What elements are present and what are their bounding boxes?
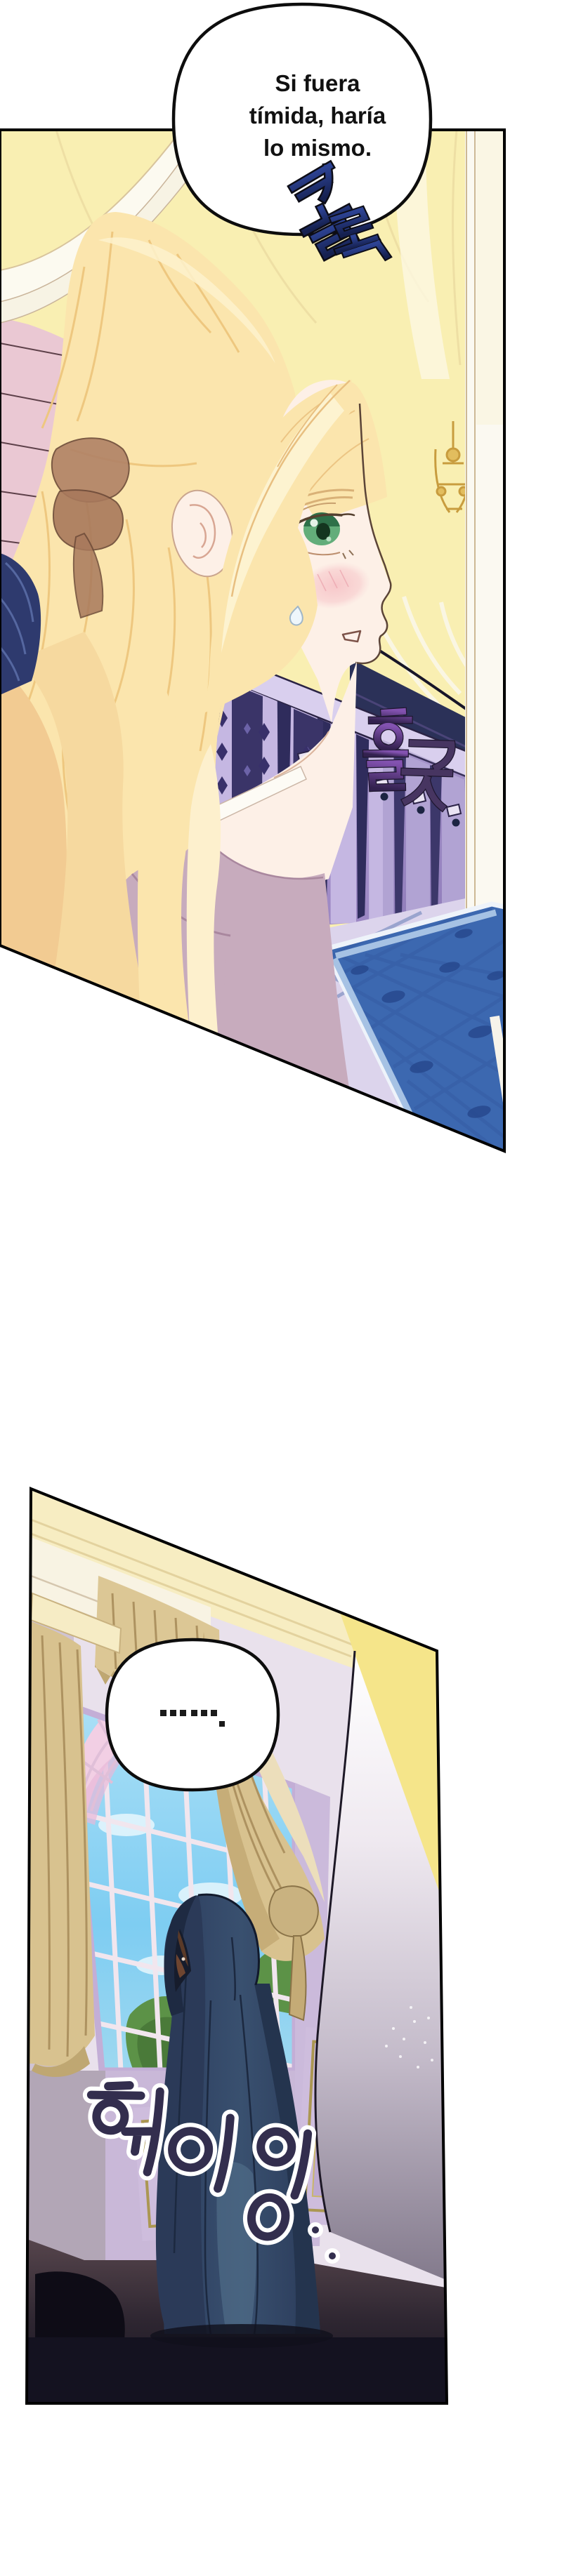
svg-text:Si fuera: Si fuera xyxy=(275,70,360,96)
svg-text:tímida, haría: tímida, haría xyxy=(249,102,386,128)
svg-text:lo mismo.: lo mismo. xyxy=(263,135,372,161)
